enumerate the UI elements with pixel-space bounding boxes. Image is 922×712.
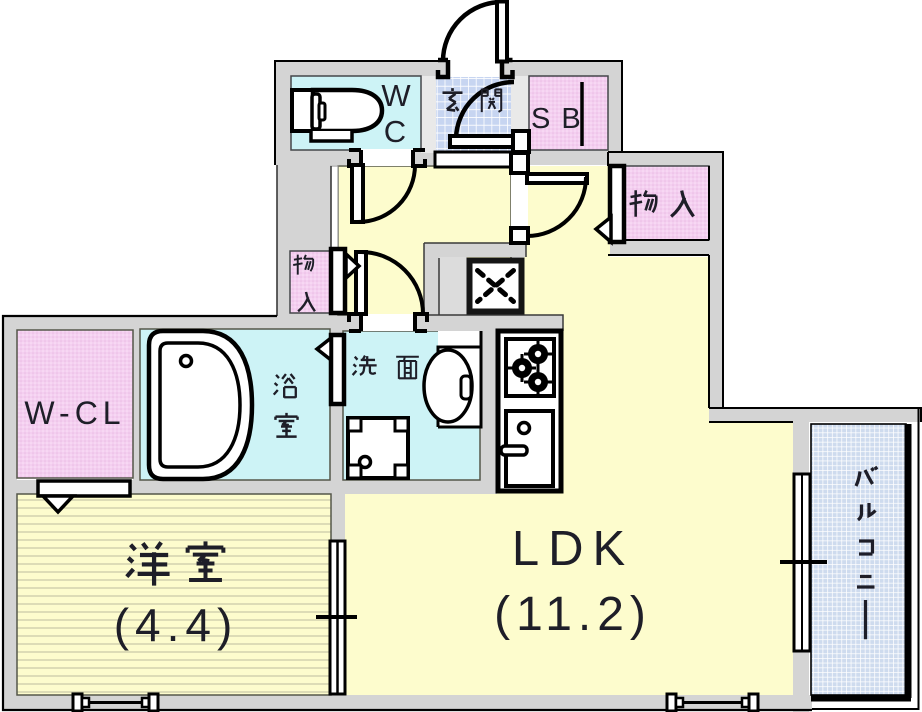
svg-text:W-CL: W-CL [24,395,125,431]
svg-text:(4.4): (4.4) [114,599,239,651]
svg-text:SB: SB [531,103,592,135]
svg-text:(11.2): (11.2) [494,588,652,641]
svg-text:W: W [381,78,411,113]
svg-text:LDK: LDK [512,522,634,576]
svg-text:C: C [384,114,406,149]
